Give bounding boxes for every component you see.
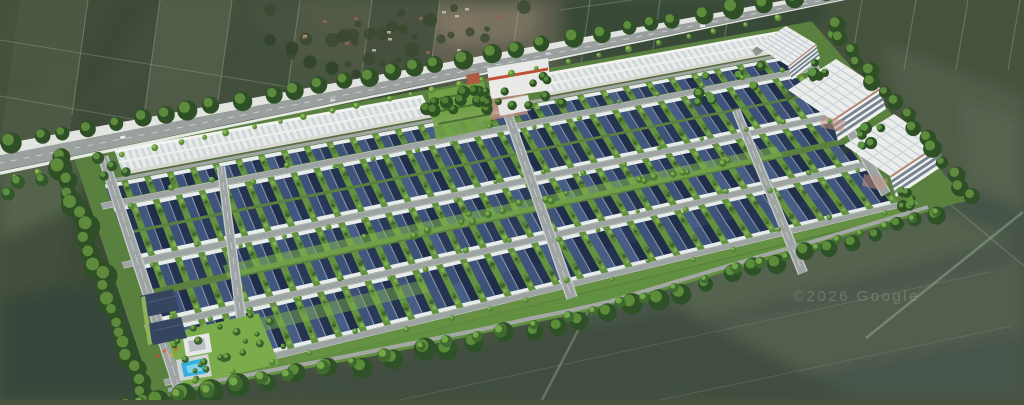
svg-text:©2026 Google: ©2026 Google bbox=[793, 288, 920, 305]
